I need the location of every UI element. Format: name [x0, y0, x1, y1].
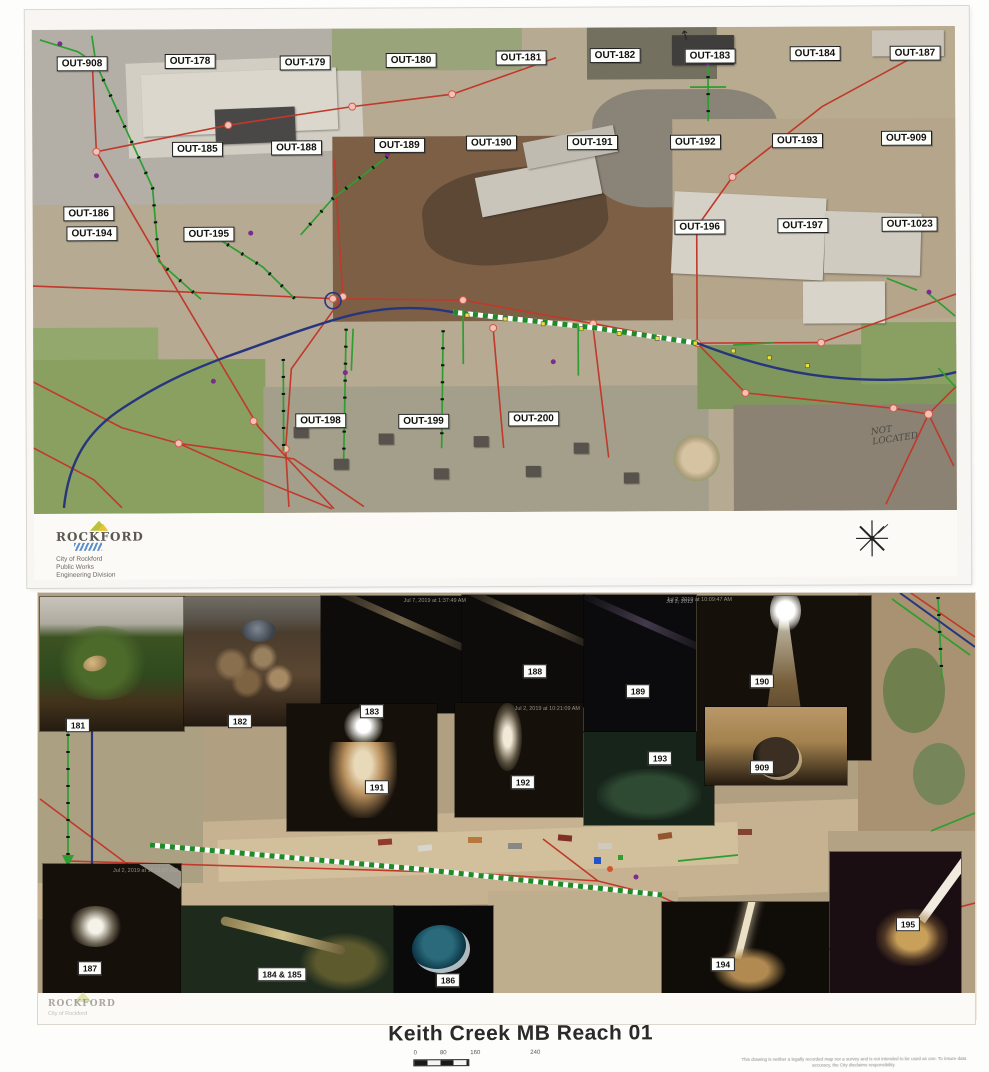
photo-tag: 187: [78, 961, 102, 975]
logo-name: ROCKFORD: [48, 999, 116, 1009]
compass-rose-icon: [850, 516, 894, 560]
outfall-label: OUT-1023: [882, 217, 938, 232]
map-title: Keith Creek MB Reach 01: [388, 1021, 653, 1046]
agency-line: City of Rockford: [48, 1011, 116, 1018]
photo-tag: 186: [436, 973, 460, 987]
photo-tag: 192: [511, 775, 535, 789]
photo-tag: 194: [711, 957, 735, 971]
rockford-logo: ROCKFORD City of Rockford Public Works E…: [56, 530, 144, 581]
outfall-label: OUT-195: [183, 227, 234, 242]
scale-bar: 080160240: [413, 1050, 563, 1067]
photo-tag: 909: [750, 760, 774, 774]
photo-tag: 183: [360, 704, 384, 718]
photo-tag: 189: [626, 684, 650, 698]
photo-tag: 184 & 185: [257, 967, 306, 981]
photo-tags-layer: 181182183188189190191192193909187184 & 1…: [38, 593, 975, 1024]
outfall-labels-layer: OUT-908OUT-178OUT-179OUT-180OUT-181OUT-1…: [32, 26, 957, 514]
outfall-label: OUT-189: [374, 138, 425, 153]
outfall-label: OUT-198: [295, 413, 346, 428]
outfall-label: OUT-908: [57, 56, 108, 71]
outfall-label: OUT-193: [772, 133, 823, 148]
photo-tag: 181: [66, 718, 90, 732]
disclaimer-text: This drawing is neither a legally record…: [736, 1056, 971, 1069]
outfall-label: OUT-183: [685, 48, 736, 63]
bottom-map-sheet: Jul 7, 2019 at 1:37:49 AMJul 2, 2019 at …: [38, 593, 975, 1024]
outfall-label: OUT-182: [590, 48, 641, 63]
agency-line: Engineering Division: [56, 572, 144, 581]
bottom-title-bar: ROCKFORD City of Rockford Keith Creek MB…: [38, 993, 975, 1024]
photo-tag: 193: [648, 751, 672, 765]
outfall-label: OUT-192: [670, 135, 721, 150]
outfall-label: OUT-196: [674, 220, 725, 235]
photo-tag: 190: [750, 674, 774, 688]
outfall-label: OUT-185: [172, 142, 223, 157]
photo-tag: 191: [365, 780, 389, 794]
outfall-label: OUT-179: [280, 55, 331, 70]
outfall-label: OUT-180: [386, 53, 437, 68]
outfall-label: OUT-190: [466, 135, 517, 150]
outfall-label: OUT-181: [496, 50, 547, 65]
outfall-label: OUT-184: [790, 46, 841, 61]
outfall-label: OUT-194: [66, 226, 117, 241]
scale-label: 240: [530, 1050, 540, 1056]
outfall-label: OUT-191: [567, 135, 618, 150]
photo-tag: 182: [228, 714, 252, 728]
logo-waves-icon: [74, 543, 102, 551]
bottom-aerial-map: Jul 7, 2019 at 1:37:49 AMJul 2, 2019 at …: [38, 593, 975, 1024]
top-aerial-map: OUT-908OUT-178OUT-179OUT-180OUT-181OUT-1…: [32, 26, 957, 514]
outfall-label: OUT-909: [881, 131, 932, 146]
rockford-logo-icon: [98, 524, 108, 531]
outfall-label: OUT-188: [271, 140, 322, 155]
outfall-label: OUT-187: [890, 46, 941, 61]
outfall-label: OUT-200: [508, 411, 559, 426]
scale-label: 80: [440, 1050, 447, 1056]
outfall-label: OUT-197: [777, 218, 828, 233]
scale-bar-graphic: [413, 1059, 469, 1066]
photo-tag: 188: [523, 664, 547, 678]
outfall-label: OUT-178: [165, 54, 216, 69]
rockford-logo: ROCKFORD City of Rockford: [48, 999, 116, 1018]
photo-tag: 195: [896, 917, 920, 931]
top-map-sheet: OUT-908OUT-178OUT-179OUT-180OUT-181OUT-1…: [25, 6, 972, 588]
scale-label: 160: [470, 1050, 480, 1056]
outfall-label: OUT-199: [398, 414, 449, 429]
top-title-bar: ROCKFORD City of Rockford Public Works E…: [34, 510, 957, 580]
scale-label: 0: [414, 1050, 417, 1056]
outfall-label: OUT-186: [63, 206, 114, 221]
